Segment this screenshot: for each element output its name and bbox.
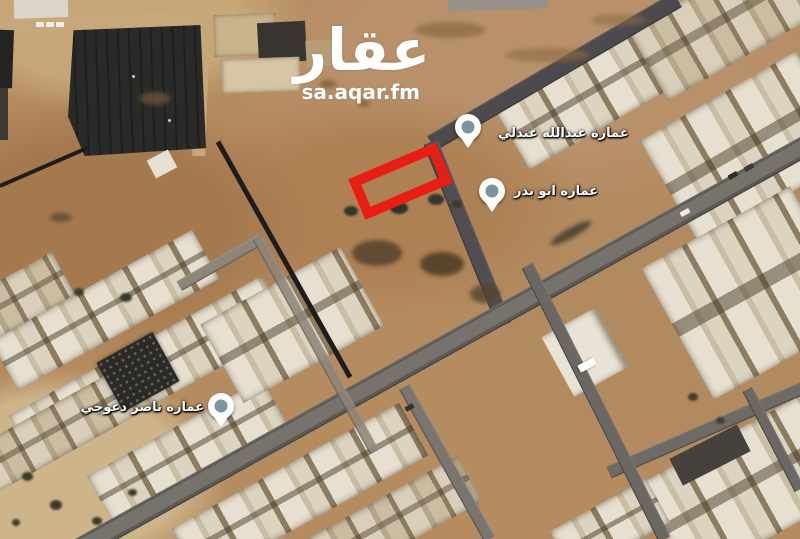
shrub — [716, 417, 725, 424]
wall-segment — [0, 88, 8, 140]
building — [147, 150, 178, 179]
watermark-site: sa.aqar.fm — [300, 80, 420, 104]
tree — [74, 288, 84, 296]
shrub — [12, 519, 20, 526]
tree — [120, 293, 132, 302]
shrub — [688, 393, 698, 401]
parked-car — [36, 22, 44, 27]
debris — [352, 240, 402, 266]
watermark-logo: عقار — [288, 12, 436, 88]
shaded-farm-plot — [68, 25, 206, 156]
rooftop-structure — [448, 0, 548, 12]
debris — [470, 285, 500, 303]
map-pin[interactable] — [208, 393, 234, 419]
map-pin[interactable] — [479, 178, 505, 204]
debris — [505, 48, 590, 62]
debris — [420, 252, 464, 276]
map-pin[interactable] — [455, 114, 481, 140]
tree — [452, 200, 462, 208]
shrub — [92, 517, 102, 525]
marker-label: عمارة عبدالله عندلي — [498, 126, 629, 141]
satellite-map[interactable]: عقار sa.aqar.fm عمارة عبدالله عندلي عمار… — [0, 0, 800, 539]
building — [14, 0, 69, 19]
debris — [50, 213, 72, 222]
parked-car — [56, 22, 64, 27]
road — [522, 263, 671, 539]
tree — [344, 206, 358, 216]
marker-label: عماره ابو بدر — [514, 184, 598, 199]
wall-segment — [0, 146, 88, 188]
debris — [548, 217, 593, 248]
shrub — [22, 472, 33, 481]
debris — [140, 92, 170, 105]
shrub — [128, 489, 137, 496]
debris — [592, 14, 647, 26]
shrub — [50, 500, 62, 510]
parked-car — [46, 22, 54, 27]
wall-segment — [0, 30, 14, 88]
tree — [428, 194, 444, 205]
marker-label: عماره ناصر دعوجي — [62, 400, 204, 415]
